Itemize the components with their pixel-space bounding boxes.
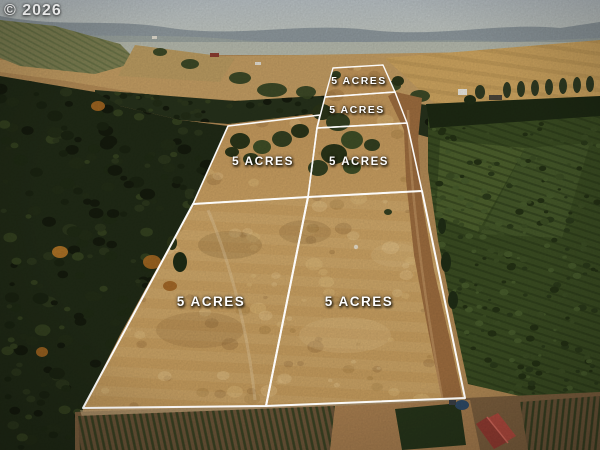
- label-middle-right-parcel: 5 ACRES: [329, 156, 389, 168]
- aerial-photo: 5 ACRES 5 ACRES 5 ACRES 5 ACRES 5 ACRES …: [0, 0, 600, 450]
- aerial-scene: 5 ACRES 5 ACRES 5 ACRES 5 ACRES 5 ACRES …: [0, 0, 600, 450]
- photo-grain: [0, 0, 600, 450]
- label-middle-left-parcel: 5 ACRES: [232, 154, 294, 168]
- label-front-right-parcel: 5 ACRES: [325, 294, 394, 309]
- copyright-watermark: © 2026: [4, 2, 62, 20]
- label-front-left-parcel: 5 ACRES: [177, 294, 246, 309]
- label-second-parcel: 5 ACRES: [329, 104, 385, 116]
- label-back-parcel: 5 ACRES: [331, 75, 387, 87]
